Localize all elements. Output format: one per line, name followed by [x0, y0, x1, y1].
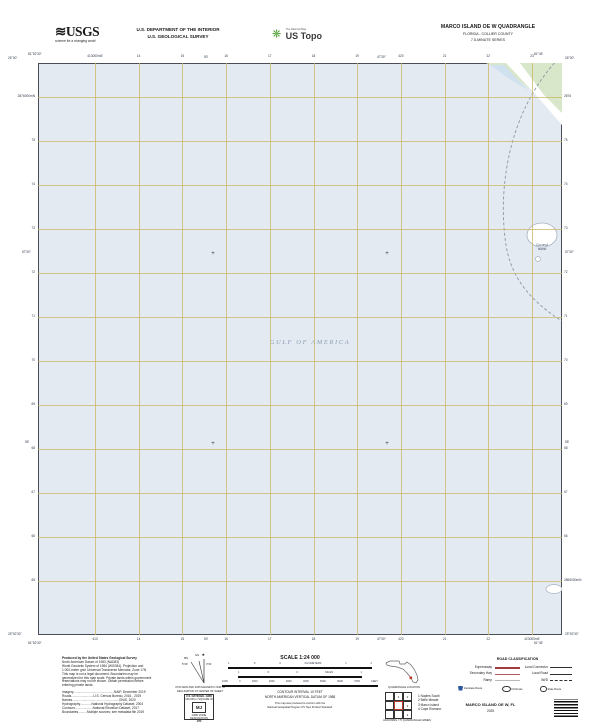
northing-label-left: 72: [6, 271, 35, 275]
northing-label-left: 65: [6, 579, 35, 583]
easting-label-bottom: 18: [298, 638, 330, 642]
easting-label-bottom: 413: [79, 638, 111, 642]
quadrangle-title-block: MARCO ISLAND OE W QUADRANGLE FLORIDA - C…: [398, 25, 578, 42]
northing-label-right: 73: [564, 227, 594, 231]
utm-grid-line-vertical: [270, 63, 271, 635]
easting-label-top: 14: [123, 55, 155, 59]
easting-label-top: 19: [341, 55, 373, 59]
utm-grid-line-vertical: [95, 63, 96, 635]
road-legend-label: Local Connector: [516, 666, 548, 670]
scale-tick-label: .5: [253, 663, 255, 666]
graticule-cross-icon: +: [385, 441, 389, 447]
scale-tick-row: 1.50MILES1: [238, 672, 362, 675]
map-name-label: MARCO ISLAND OE W, FL: [428, 703, 553, 708]
islet-shape: [536, 257, 541, 262]
northing-label-left: 70: [6, 359, 35, 363]
easting-label-top: 18: [298, 55, 330, 59]
northing-label-left: 71: [6, 315, 35, 319]
utm-grid-line-vertical: [314, 63, 315, 635]
utm-grid-line-horizontal: [38, 317, 562, 318]
minute-label: 50': [204, 638, 208, 642]
declination-diagram: ★ MN 5°29' GN 0°21': [182, 655, 222, 685]
corner-coordinate: 81°52'30": [28, 53, 42, 57]
adjoining-cell: [385, 710, 394, 719]
northing-label-right: 68: [564, 447, 594, 451]
easting-label-top: 15: [166, 55, 198, 59]
northing-label-left: 2876000mN: [6, 95, 35, 99]
northing-label-left: 74: [6, 183, 35, 187]
utm-grid-line-horizontal: [38, 97, 562, 98]
northing-label-right: 74: [564, 183, 594, 187]
minute-label: 55': [565, 441, 569, 445]
ustopo-logo: ❋ The National Map US Topo: [272, 26, 322, 44]
magnetic-north-label: MN: [184, 658, 188, 661]
usng-subtitle: 100,000-m SQUARE ID: [185, 698, 213, 701]
corner-coordinate: 81°52'30": [28, 642, 42, 646]
minute-label: 57'30": [565, 251, 574, 255]
adjoining-cell: 4: [403, 710, 412, 719]
road-legend-swatch-local: [550, 674, 572, 675]
adjoining-cell: 2: [403, 692, 412, 701]
corner-coordinate: 26°00': [565, 57, 574, 61]
utm-grid-line-vertical: [226, 63, 227, 635]
scale-tick-label: .5: [267, 672, 269, 675]
corner-coordinate: 25°52'30": [565, 633, 579, 637]
road-classification-title: ROAD CLASSIFICATION: [470, 657, 565, 661]
easting-label-bottom: 14: [123, 638, 155, 642]
route-shield-label: US Route: [511, 687, 523, 690]
contour-note2: NORTH AMERICAN VERTICAL DATUM OF 1988: [220, 696, 380, 700]
easting-label-bottom: 423000mE: [516, 638, 548, 642]
graticule-cross-icon: +: [211, 251, 215, 257]
scale-tick-label: MILES: [325, 672, 333, 675]
scale-tick-label: 6000: [337, 681, 343, 684]
grid-north-value: 0°21': [206, 664, 212, 667]
utm-grid-line-vertical: [445, 63, 446, 635]
scale-tick-label: 0: [239, 681, 240, 684]
grid-north-label: GN: [195, 655, 199, 658]
scale-bar-kilometers: [228, 667, 372, 669]
road-legend-label: Secondary Hwy: [458, 672, 492, 676]
scale-tick-label: 1: [361, 672, 362, 675]
adjoining-quadrangles-grid: 1234: [385, 692, 412, 719]
map-features: [38, 63, 562, 635]
quad-title: MARCO ISLAND OE W QUADRANGLE: [398, 25, 578, 31]
usgs-logo: ≋USGS science for a changing world: [55, 23, 99, 44]
easting-label-top: 16: [210, 55, 242, 59]
utm-grid-line-vertical: [182, 63, 183, 635]
northing-label-right: 72: [564, 271, 594, 275]
adjoining-cell: [394, 710, 403, 719]
usng-box: U.S. NATIONAL GRID 100,000-m SQUARE ID M…: [184, 694, 214, 720]
route-shield-item: US Route: [502, 686, 522, 693]
easting-label-top: 22: [472, 55, 504, 59]
scale-tick-row: 100001000200030004000500060007000FEET: [222, 681, 378, 684]
utm-grid-line-horizontal: [38, 405, 562, 406]
northing-label-right: 75: [564, 139, 594, 143]
utm-grid-line-vertical: [139, 63, 140, 635]
minute-label: 50': [204, 56, 208, 60]
scale-bar-miles: [238, 676, 362, 678]
northing-label-right: 67: [564, 491, 594, 495]
state-route-shield-icon: [540, 686, 547, 693]
shoal-shape: [546, 585, 562, 594]
utm-grid-line-horizontal: [38, 273, 562, 274]
scale-tick-label: 2: [370, 663, 371, 666]
easting-label-top: 413000mE: [79, 55, 111, 59]
usgs-logo-wordmark: ≋USGS: [55, 24, 99, 39]
easting-label-top: 21: [429, 55, 461, 59]
adjoining-cell: [385, 692, 394, 701]
utm-grid-line-horizontal: [38, 581, 562, 582]
scale-tick-label: 1: [345, 663, 346, 666]
corner-coordinate: 25°52'30": [8, 633, 22, 637]
minute-label: 47'30": [377, 638, 386, 642]
us-route-shield-icon: [502, 686, 511, 693]
adjoining-cell: 3: [403, 701, 412, 710]
quadrangle-location-caption: QUADRANGLE LOCATION: [376, 687, 432, 690]
corner-coordinate: 81°45': [534, 642, 543, 646]
easting-label-bottom: 15: [166, 638, 198, 642]
adjoining-cell: 1: [394, 692, 403, 701]
utm-grid-line-vertical: [357, 63, 358, 635]
utm-grid-line-vertical: [488, 63, 489, 635]
road-legend-label: Expressway: [458, 666, 492, 670]
road-legend-swatch-connector: [550, 667, 572, 668]
scale-tick-label: 2000: [269, 681, 275, 684]
road-legend-label: Ramp: [458, 679, 492, 683]
usgs-wave-icon: ≋: [55, 24, 66, 39]
minute-label: 47'30": [377, 56, 386, 60]
northing-label-left: 69: [6, 403, 35, 407]
ustopo-flower-icon: ❋: [272, 28, 281, 40]
easting-label-top: 420: [385, 55, 417, 59]
usgs-topo-map-sheet: ≋USGS science for a changing world U.S. …: [0, 0, 600, 725]
barcode: [554, 699, 578, 717]
adjoining-caption: ADJOINING 7.5' QUADRANGLE NAMES: [362, 720, 452, 723]
northing-label-right: 69: [564, 403, 594, 407]
easting-label-top: 17: [254, 55, 286, 59]
easting-label-top: 23: [516, 55, 548, 59]
easting-label-bottom: 22: [472, 638, 504, 642]
route-shield-item: Interstate Route: [458, 686, 482, 691]
northing-label-left: 66: [6, 535, 35, 539]
graticule-cross-icon: +: [211, 441, 215, 447]
utm-grid-line-horizontal: [38, 185, 562, 186]
road-legend-label: Local Road: [516, 672, 548, 676]
northing-label-left: 73: [6, 227, 35, 231]
corner-coordinate: 26°00': [8, 57, 17, 61]
route-shield-label: Interstate Route: [463, 687, 482, 690]
easting-label-bottom: 17: [254, 638, 286, 642]
edition-year: 2025: [428, 710, 553, 714]
scale-tick-label: 3000: [286, 681, 292, 684]
northing-label-right: 70: [564, 359, 594, 363]
utm-grid-line-horizontal: [38, 229, 562, 230]
usng-zone: 17R: [185, 720, 213, 723]
northing-label-right: 2865000mN: [564, 579, 594, 583]
magnetic-north-value: 5°29': [182, 664, 188, 667]
minute-label: 55': [25, 441, 29, 445]
utm-grid-line-vertical: [401, 63, 402, 635]
adjoining-cell: [385, 701, 394, 710]
water-body-label: GULF OF AMERICA: [265, 339, 355, 346]
utm-grid-line-horizontal: [38, 449, 562, 450]
utm-grid-line-horizontal: [38, 493, 562, 494]
adjoining-cell-this-quad: [394, 701, 403, 710]
northing-label-right: 66: [564, 535, 594, 539]
scale-tick-label: FEET: [371, 681, 378, 684]
utm-grid-line-horizontal: [38, 537, 562, 538]
utm-grid-line-horizontal: [38, 361, 562, 362]
standard-note2: National Geospatial Program US Topo Prod…: [220, 707, 380, 710]
easting-label-bottom: 16: [210, 638, 242, 642]
graticule-cross-icon: +: [385, 251, 389, 257]
road-legend-swatch-fourwd: [550, 680, 572, 681]
route-shield-label: State Route: [547, 688, 561, 691]
dept-line2: U.S. GEOLOGICAL SURVEY: [118, 34, 238, 41]
scale-tick-label: 7000: [354, 681, 360, 684]
northing-label-left: 68: [6, 447, 35, 451]
easting-label-bottom: 19: [341, 638, 373, 642]
northing-label-left: 67: [6, 491, 35, 495]
true-north-star-icon: ★: [202, 653, 206, 658]
scale-bar-feet: [222, 685, 378, 687]
quad-subtitle2: 7.5-MINUTE SERIES: [398, 38, 578, 42]
minute-label: 57'30": [22, 251, 31, 255]
florida-outline: [384, 656, 424, 686]
scale-tick-label: 0: [279, 663, 280, 666]
utm-grid-line-horizontal: [38, 141, 562, 142]
easting-label-bottom: 21: [429, 638, 461, 642]
quad-subtitle1: FLORIDA - COLLIER COUNTY: [398, 32, 578, 36]
scale-title: SCALE 1:24 000: [240, 656, 360, 662]
scale-tick-label: 4000: [303, 681, 309, 684]
northing-label-left: 75: [6, 139, 35, 143]
northing-label-right: 71: [564, 315, 594, 319]
interstate-shield-icon: [458, 686, 463, 691]
scale-tick-label: 1: [238, 672, 239, 675]
corner-coordinate: 81°45': [534, 53, 543, 57]
department-heading: U.S. DEPARTMENT OF THE INTERIOR U.S. GEO…: [118, 27, 238, 41]
ustopo-brand: US Topo: [286, 31, 322, 41]
scale-tick-label: 1: [228, 663, 229, 666]
route-shield-item: State Route: [540, 686, 561, 693]
usng-square-id: MJ: [192, 702, 206, 713]
usgs-tagline: science for a changing world: [55, 40, 99, 44]
quad-location-marker: [410, 677, 413, 680]
road-legend-label: 4WD: [516, 679, 548, 683]
scale-tick-label: 1000: [222, 681, 228, 684]
scale-tick-label: 1000: [252, 681, 258, 684]
northing-label-right: 2876: [564, 95, 594, 99]
scale-tick-label: 0: [296, 672, 297, 675]
easting-label-bottom: 420: [385, 638, 417, 642]
utm-grid-line-vertical: [532, 63, 533, 635]
scale-tick-row: 1.50KILOMETERS12: [228, 663, 372, 666]
scale-tick-label: KILOMETERS: [305, 663, 322, 666]
dept-line1: U.S. DEPARTMENT OF THE INTERIOR: [118, 27, 238, 34]
scale-tick-label: 5000: [320, 681, 326, 684]
